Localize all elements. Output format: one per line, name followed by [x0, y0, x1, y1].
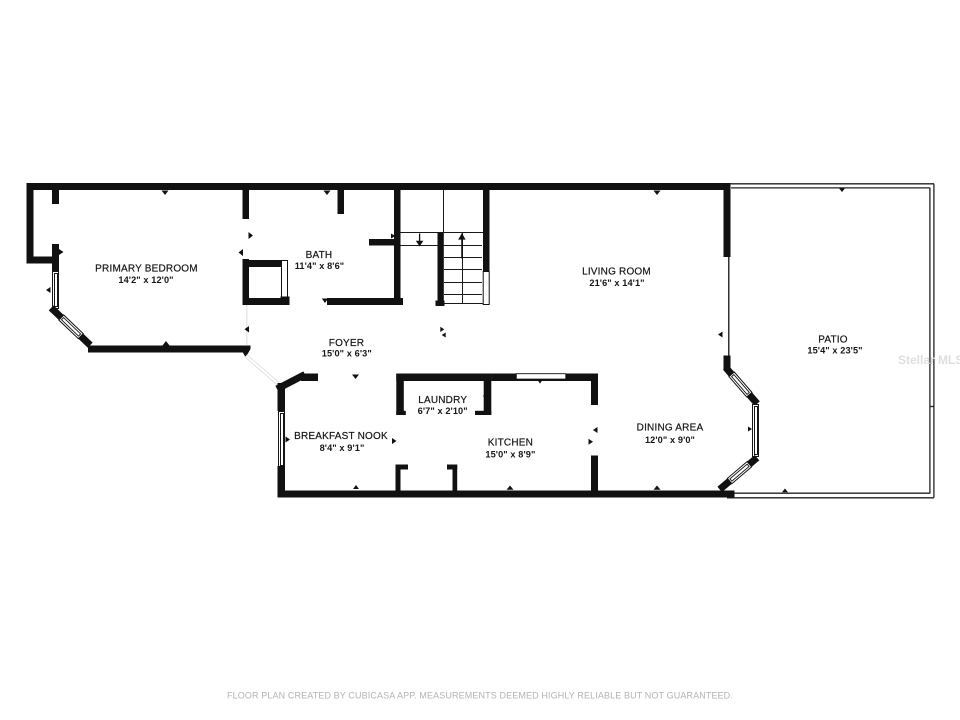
svg-text:15'4" x 23'5": 15'4" x 23'5": [807, 345, 862, 355]
svg-text:Stellar MLS: Stellar MLS: [898, 353, 960, 367]
svg-text:LIVING ROOM: LIVING ROOM: [582, 266, 651, 277]
svg-text:KITCHEN: KITCHEN: [488, 437, 533, 448]
svg-text:PATIO: PATIO: [818, 334, 848, 345]
svg-text:15'0" x 8'9": 15'0" x 8'9": [485, 449, 535, 459]
svg-text:FLOOR PLAN CREATED BY CUBICASA: FLOOR PLAN CREATED BY CUBICASA APP. MEAS…: [227, 691, 733, 701]
svg-text:FOYER: FOYER: [329, 338, 364, 349]
svg-text:8'4" x 9'1": 8'4" x 9'1": [320, 443, 365, 453]
svg-text:BREAKFAST NOOK: BREAKFAST NOOK: [294, 431, 388, 442]
svg-text:15'0" x 6'3": 15'0" x 6'3": [322, 349, 372, 359]
svg-text:LAUNDRY: LAUNDRY: [418, 395, 467, 406]
svg-text:11'4" x 8'6": 11'4" x 8'6": [295, 261, 345, 271]
svg-text:PRIMARY BEDROOM: PRIMARY BEDROOM: [95, 264, 198, 275]
svg-text:6'7" x 2'10": 6'7" x 2'10": [418, 406, 468, 416]
svg-text:BATH: BATH: [306, 250, 333, 261]
svg-text:12'0" x 9'0": 12'0" x 9'0": [645, 435, 695, 445]
svg-text:21'6" x 14'1": 21'6" x 14'1": [589, 278, 644, 288]
svg-text:DINING AREA: DINING AREA: [637, 423, 704, 434]
svg-text:14'2" x 12'0": 14'2" x 12'0": [118, 275, 173, 285]
